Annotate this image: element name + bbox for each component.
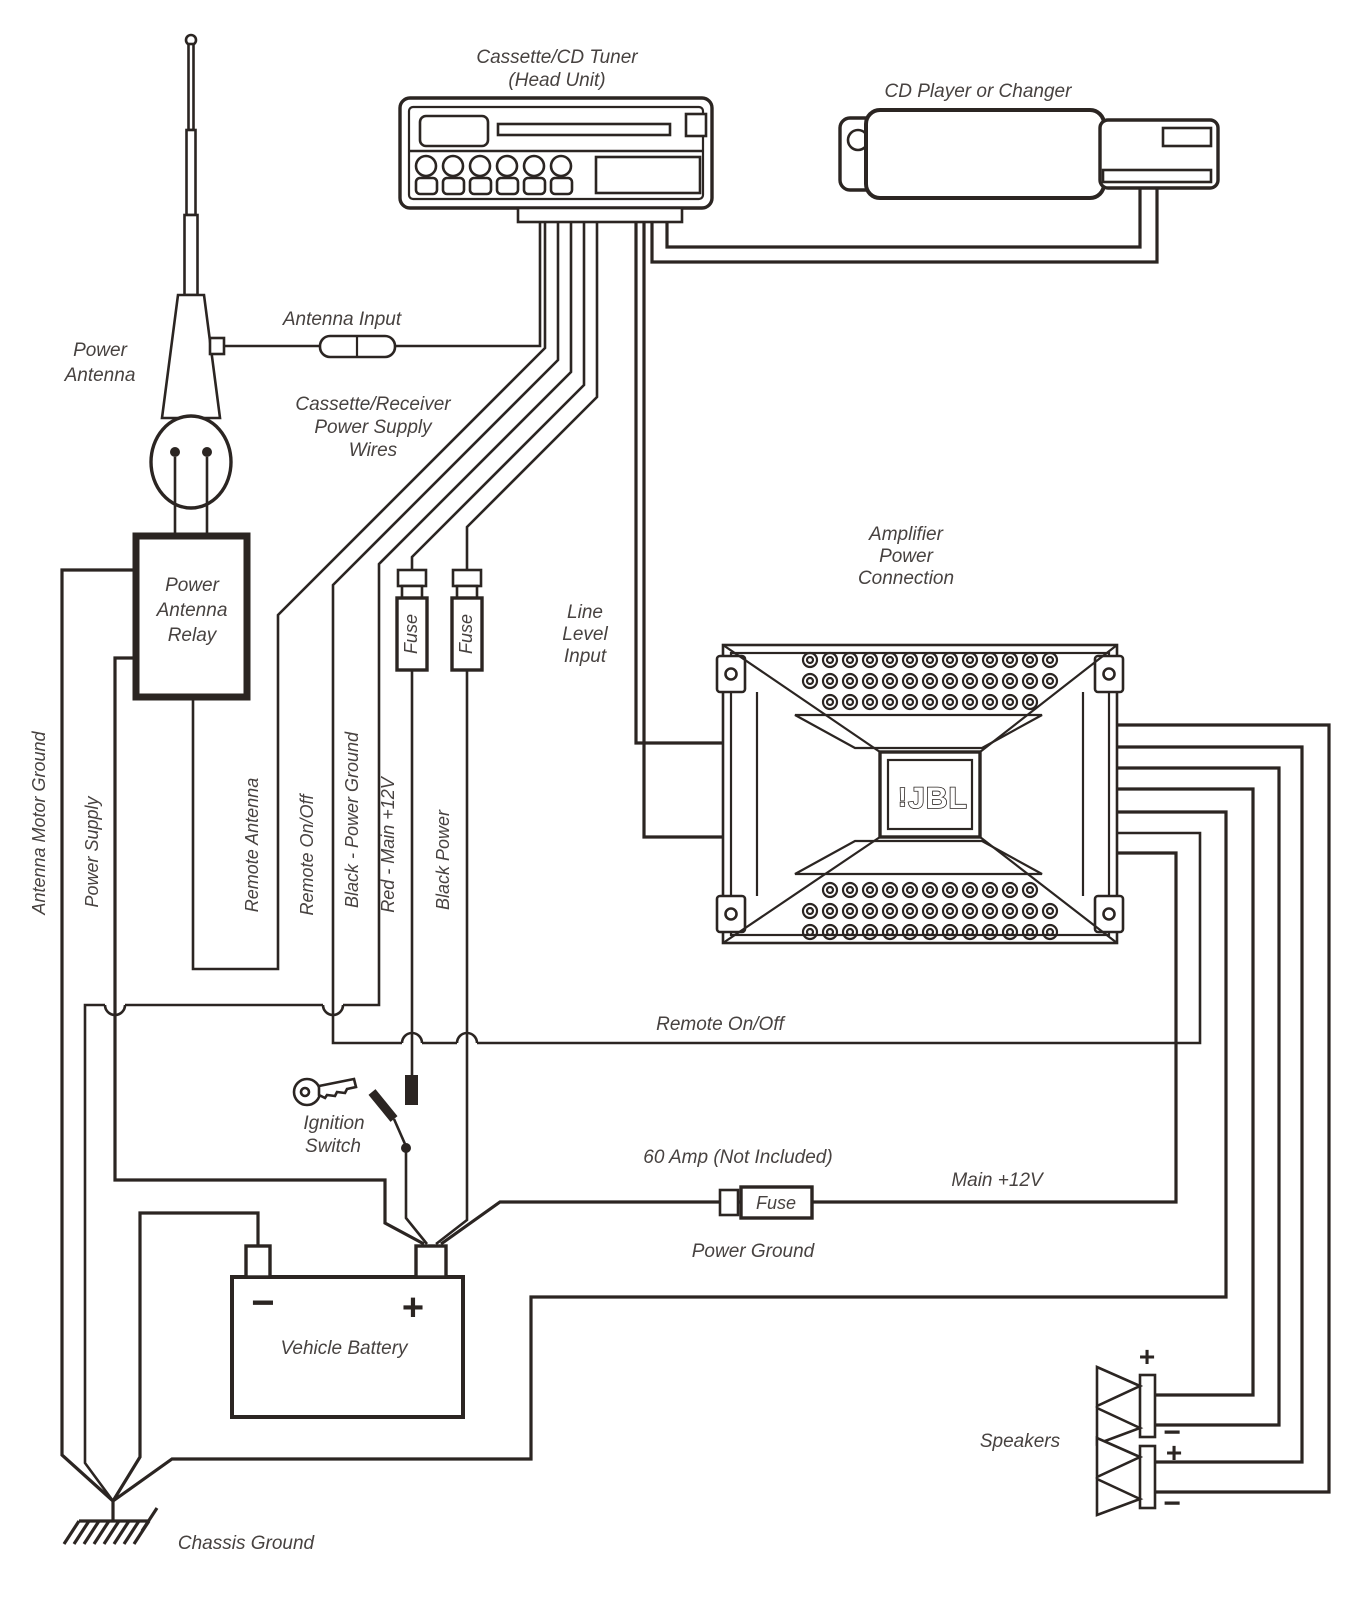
amp-label-1: Amplifier <box>868 524 944 545</box>
power-antenna-label-2: Antenna <box>64 365 136 386</box>
chassis-ground: Chassis Ground <box>64 1508 316 1554</box>
head-unit-button <box>497 178 518 194</box>
power-antenna: Power Antenna <box>64 35 231 536</box>
relay-label-2: Antenna <box>156 600 228 621</box>
antenna-terminal-2 <box>202 447 212 457</box>
wire-ignition-feed <box>406 1152 427 1244</box>
wire-speaker-1-minus <box>1117 768 1279 1425</box>
speaker-horn <box>1097 1438 1140 1477</box>
speaker2-minus: − <box>1163 1487 1181 1520</box>
fuse-black-power: Fuse <box>452 570 482 670</box>
speakers-label: Speakers <box>980 1431 1061 1452</box>
amplifier: Amplifier Power Connection ! JBL <box>717 524 1123 943</box>
battery-label: Vehicle Battery <box>280 1338 409 1359</box>
battery-terminal-minus <box>246 1246 270 1277</box>
power-antenna-relay: Power Antenna Relay <box>136 536 247 697</box>
antenna-rod-1 <box>189 44 194 130</box>
cd-player-label: CD Player or Changer <box>885 81 1073 102</box>
antenna-rod-2 <box>187 130 196 215</box>
amp-label-2: Power <box>879 546 934 567</box>
label-black-power-ground: Black - Power Ground <box>342 731 362 908</box>
fuse-60-amp: Fuse <box>720 1187 812 1218</box>
head-unit-knob <box>416 156 436 176</box>
speakers: Speakers + − + − <box>980 1341 1182 1520</box>
antenna-side-tab <box>210 338 224 354</box>
wire-labels: Antenna Motor Ground Power Supply Remote… <box>29 730 453 915</box>
ignition-label-1: Ignition <box>303 1113 364 1134</box>
fuse-cap <box>398 570 426 586</box>
chassis-ground-label: Chassis Ground <box>178 1533 316 1554</box>
battery-minus-sign: − <box>251 1281 274 1325</box>
speaker-horn <box>1097 1367 1140 1406</box>
speaker-horn <box>1097 1408 1140 1444</box>
switch-pivot <box>401 1143 411 1153</box>
fuse-label: Fuse <box>401 614 421 654</box>
note-line-2: Power Supply <box>314 417 433 438</box>
fuse-label: Fuse <box>756 1193 796 1213</box>
antenna-rod-3 <box>185 215 198 295</box>
label-remote-on-off: Remote On/Off <box>297 792 317 915</box>
amp-screw-hole <box>1104 909 1115 920</box>
head-unit-button <box>524 178 545 194</box>
amp-screw-hole <box>726 669 737 680</box>
label-antenna-motor-ground: Antenna Motor Ground <box>29 730 49 915</box>
power-antenna-label-1: Power <box>73 340 128 361</box>
wire-antenna-motor-ground <box>62 570 136 1501</box>
line-level-3: Input <box>564 646 607 667</box>
amp-logo-mark: ! <box>898 782 908 812</box>
head-unit-knob <box>551 156 571 176</box>
fuse-60a-note: 60 Amp (Not Included) <box>643 1147 832 1168</box>
head-unit-display <box>596 157 700 193</box>
switch-arm <box>394 1119 405 1144</box>
head-unit-title-2: (Head Unit) <box>508 70 605 91</box>
head-unit-knob <box>443 156 463 176</box>
head-unit-knob <box>524 156 544 176</box>
head-unit-button <box>416 178 437 194</box>
antenna-input-label: Antenna Input <box>282 309 402 330</box>
power-ground-label: Power Ground <box>692 1241 816 1262</box>
line-level-2: Level <box>562 624 608 645</box>
wire-line-level-2 <box>644 222 723 837</box>
head-unit-knob <box>497 156 517 176</box>
amp-label-3: Connection <box>858 568 954 589</box>
eject-button <box>686 114 706 136</box>
amp-screw-hole <box>1104 669 1115 680</box>
relay-label-1: Power <box>165 575 220 596</box>
amp-screw-hole <box>726 909 737 920</box>
supply-wires-note: Cassette/Receiver Power Supply Wires <box>295 394 451 461</box>
antenna-terminal-1 <box>170 447 180 457</box>
wire-speaker-1-plus <box>1117 789 1253 1395</box>
main-12v-label: Main +12V <box>951 1170 1045 1191</box>
label-remote-antenna: Remote Antenna <box>242 778 262 912</box>
ground-hatches <box>64 1508 157 1544</box>
key-hole <box>301 1088 309 1096</box>
cd-player-port <box>1163 128 1211 146</box>
note-line-1: Cassette/Receiver <box>295 394 451 415</box>
antenna-base-cone <box>162 295 220 418</box>
head-unit-button <box>470 178 491 194</box>
key-shaft <box>319 1079 356 1098</box>
cd-player: CD Player or Changer <box>840 81 1218 198</box>
cd-slot <box>498 124 670 135</box>
antenna-base <box>151 416 231 508</box>
fuse-neck <box>457 586 477 598</box>
ignition-label-2: Switch <box>305 1136 361 1157</box>
battery-terminal-plus <box>416 1246 446 1277</box>
antenna-input-connector: Antenna Input <box>282 309 402 357</box>
fuse-cap <box>453 570 481 586</box>
fuse-cap <box>720 1190 738 1215</box>
head-unit: Cassette/CD Tuner (Head Unit) <box>400 47 712 222</box>
fuse-label: Fuse <box>456 614 476 654</box>
cd-player-body <box>866 110 1104 198</box>
amp-logo: JBL <box>908 782 968 815</box>
speaker1-plus: + <box>1139 1341 1155 1372</box>
head-unit-title-1: Cassette/CD Tuner <box>476 47 638 68</box>
switch-blade <box>372 1092 394 1119</box>
fuse-neck <box>402 586 422 598</box>
fuse-red-main: Fuse <box>397 570 427 670</box>
speaker-horn <box>1097 1479 1140 1515</box>
ignition-switch: Ignition Switch <box>294 1075 418 1157</box>
battery-plus-sign: + <box>402 1287 424 1329</box>
head-unit-connector <box>518 208 682 222</box>
label-power-supply: Power Supply <box>82 795 102 907</box>
line-level-note: Line Level Input <box>562 602 608 667</box>
note-line-3: Wires <box>349 440 398 461</box>
line-level-1: Line <box>567 602 603 623</box>
head-unit-display-small <box>420 116 488 146</box>
wiring-diagram: Power Antenna Antenna Input Cassette/Rec… <box>0 0 1360 1600</box>
relay-label-3: Relay <box>168 625 218 646</box>
head-unit-knob <box>470 156 490 176</box>
label-black-power: Black Power <box>433 809 453 910</box>
label-red-main-12v: Red - Main +12V <box>378 775 398 913</box>
wire-power-supply <box>115 658 424 1244</box>
head-unit-button <box>551 178 572 194</box>
vehicle-battery: − + Vehicle Battery <box>232 1246 463 1417</box>
wire-line-level-1 <box>636 222 723 743</box>
remote-on-off-run-label: Remote On/Off <box>656 1014 785 1035</box>
speaker2-plus: + <box>1166 1437 1182 1468</box>
head-unit-button <box>443 178 464 194</box>
switch-contact <box>405 1075 418 1105</box>
cd-player-slot <box>1103 170 1211 182</box>
